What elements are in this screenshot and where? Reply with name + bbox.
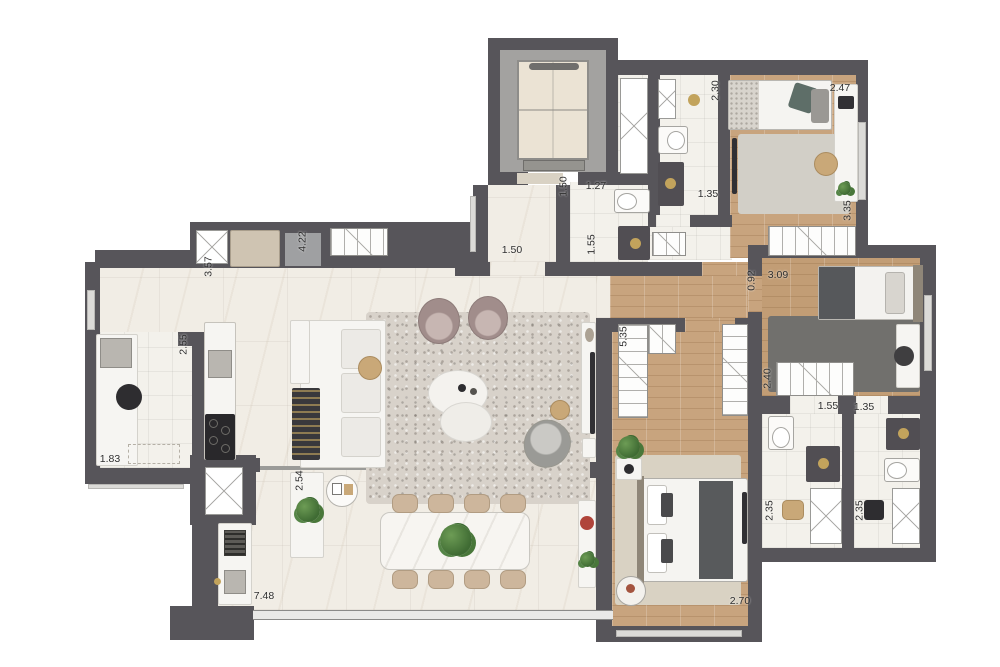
wall-elevator	[488, 38, 618, 50]
elevator-door	[523, 160, 585, 171]
stool	[814, 152, 838, 176]
decor-box	[344, 484, 353, 495]
bed-pillow-accent	[661, 493, 673, 517]
dim-label-bath2-width: 1.55	[808, 401, 848, 412]
future-cabinet-dashed	[128, 444, 180, 464]
burner	[221, 426, 230, 435]
decor-flowers	[626, 584, 635, 593]
cooktop	[205, 414, 235, 460]
dining-chair	[464, 570, 490, 589]
wall-elevator	[488, 44, 500, 185]
window	[858, 122, 866, 200]
wall-segment	[170, 606, 254, 640]
kitchen-sink	[208, 350, 232, 378]
floor-bath1-door-gap	[656, 215, 690, 227]
wall-segment	[842, 414, 854, 548]
dim-label-terrace-width: 7.48	[244, 591, 284, 602]
bed-king	[640, 478, 748, 582]
side-table-round	[326, 475, 358, 507]
toilet	[614, 189, 650, 213]
nightstand-decor	[624, 464, 634, 474]
decor-bowl	[580, 516, 594, 530]
wall-segment	[545, 262, 648, 276]
elevator-handle	[529, 63, 579, 70]
armchair	[468, 296, 508, 340]
window	[87, 290, 95, 330]
vessel-sink	[898, 428, 909, 439]
wall-segment	[648, 215, 656, 227]
desk-tv	[838, 96, 854, 109]
dim-label-lavabo-depth: 1.55	[586, 228, 597, 262]
vessel-sink	[818, 458, 829, 469]
dining-chair	[392, 570, 418, 589]
plant	[618, 436, 640, 458]
grill	[224, 530, 246, 556]
shower-box	[892, 488, 920, 544]
side-table	[358, 356, 382, 380]
sofa-shelf	[290, 320, 310, 384]
wall-segment	[596, 318, 612, 640]
terrace-glass-rail	[253, 610, 613, 620]
tray-decor	[470, 388, 477, 395]
armchair	[418, 298, 460, 344]
bed-pillow	[811, 89, 829, 123]
burner	[209, 419, 218, 428]
shower-stool	[864, 500, 884, 520]
wall-segment	[85, 468, 190, 484]
floor-plan: 3.57 4.22 1.50 1.50 1.27 1.55 2.30 2.47 …	[0, 0, 1000, 667]
shower-box	[810, 488, 842, 544]
dim-label-laundry-width: 1.83	[90, 454, 130, 465]
tv-panel	[742, 492, 747, 544]
window	[924, 295, 932, 371]
toilet-bowl	[887, 462, 907, 479]
plant	[580, 552, 595, 567]
elevator-cab	[517, 60, 589, 160]
console-box	[582, 438, 596, 458]
linen-closet-hatch	[652, 232, 686, 256]
dim-label-closet-depth: 5.35	[618, 320, 629, 354]
dim-label-bed1-depth: 3.35	[842, 194, 853, 228]
vessel-sink	[665, 178, 676, 189]
bed-throw	[819, 267, 855, 319]
dim-label-laundry-depth: 2.55	[178, 328, 189, 362]
dining-chair	[428, 570, 454, 589]
wall-segment	[888, 396, 936, 414]
shower-head	[688, 94, 700, 106]
window	[470, 196, 476, 252]
dim-label-buffet-length: 2.54	[294, 464, 305, 498]
laundry-sink	[100, 338, 132, 368]
washer	[116, 384, 142, 410]
tv-panel	[590, 352, 595, 434]
shaft-xbox	[205, 467, 243, 515]
dim-label-bed2-wardrobe: 2.40	[762, 362, 773, 396]
bed-single	[818, 266, 922, 320]
bed-blanket	[729, 81, 759, 129]
closet-wardrobe-hatch	[722, 324, 748, 416]
dim-label-bath2-depth: 2.35	[764, 494, 775, 528]
vent-xbox	[658, 79, 676, 119]
floor-corridor-opening	[596, 276, 610, 318]
sofa-cushion	[341, 373, 381, 413]
shower-bench	[782, 500, 804, 520]
floor-corridor	[610, 276, 756, 318]
wall-segment	[690, 215, 732, 227]
dim-label-bed1-width: 2.47	[820, 83, 860, 94]
desk-chair	[894, 346, 914, 366]
plant-centerpiece	[440, 524, 472, 556]
wine-rack	[292, 388, 320, 460]
bed-headboard	[913, 265, 923, 322]
burner	[221, 444, 230, 453]
plant	[296, 498, 320, 522]
bed-pillow-accent	[661, 539, 673, 563]
tray-decor	[458, 384, 466, 392]
bed-throw	[699, 481, 733, 579]
side-table-small	[550, 400, 570, 420]
window	[616, 630, 742, 637]
wall-segment	[455, 262, 490, 276]
fridge	[230, 230, 280, 267]
dim-label-bed2-width: 3.09	[758, 270, 798, 281]
toilet	[768, 416, 794, 450]
dining-chair	[464, 494, 490, 513]
dim-label-master-width: 2.70	[720, 596, 760, 607]
elevator-mat	[517, 173, 563, 184]
dim-label-hall-width: 1.50	[492, 245, 532, 256]
wall-segment	[648, 262, 702, 276]
dim-label-lavabo-width: 1.27	[576, 181, 616, 192]
dining-chair	[392, 494, 418, 513]
toilet	[884, 458, 920, 482]
bed-single	[728, 80, 832, 130]
tv-panel	[732, 138, 737, 194]
decor-book	[332, 483, 342, 495]
window	[88, 484, 184, 489]
sofa-cushion	[341, 417, 381, 457]
dim-label-kitchen-run: 4.22	[297, 225, 308, 259]
dim-label-hall-depth: 1.50	[558, 170, 569, 204]
dim-label-bath1-width: 1.35	[688, 189, 728, 200]
dining-chair	[428, 494, 454, 513]
dim-label-bath3-width: 1.35	[844, 402, 884, 413]
wardrobe-hatch	[776, 362, 854, 396]
wall-segment	[756, 396, 790, 414]
dim-label-bath3-depth: 2.35	[854, 494, 865, 528]
dining-chair	[500, 570, 526, 589]
dining-chair	[500, 494, 526, 513]
terrace-console	[578, 500, 596, 588]
toilet	[658, 126, 688, 154]
floor-hall-door-gap	[490, 262, 545, 276]
burner	[209, 436, 218, 445]
toilet-bowl	[667, 131, 685, 150]
wardrobe-hatch	[768, 226, 856, 256]
decor-stones	[585, 328, 594, 342]
closet-hatch	[330, 228, 388, 256]
dim-label-kitchen-depth: 3.57	[203, 250, 214, 284]
floor-bedroom1-door-gap	[702, 262, 748, 276]
wall-segment	[748, 318, 762, 626]
wall-segment	[748, 548, 936, 562]
closet-wardrobe-hatch	[648, 324, 676, 354]
toilet-bowl	[772, 427, 790, 448]
bed-pillow	[885, 272, 905, 314]
dim-label-bath1-depth: 2.30	[710, 74, 721, 108]
bed-headboard	[637, 476, 644, 584]
vessel-sink	[630, 238, 641, 249]
coffee-table	[440, 402, 492, 442]
wall-segment	[612, 60, 868, 75]
tall-closet-xbox	[620, 78, 648, 174]
faucet	[214, 578, 221, 585]
dim-label-corridor-width: 0.92	[746, 264, 757, 298]
wall-segment	[246, 458, 260, 472]
toilet-bowl	[617, 193, 637, 210]
grill-sink	[224, 570, 246, 594]
wall-segment	[95, 250, 195, 268]
